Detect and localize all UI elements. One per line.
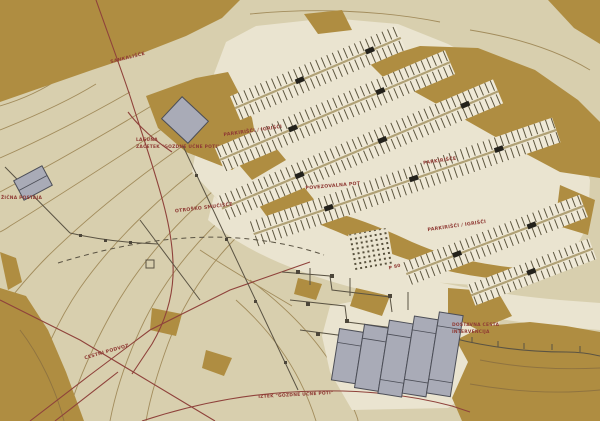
label-laguna-sub: ZAČETEK "GOZDNE UČNE POTI" — [136, 143, 220, 150]
label-delivery-road-sub: INTERVENCIJA — [452, 329, 490, 335]
label-delivery-road: DOSTAVNA CESTA — [452, 322, 500, 328]
map-canvas: SANKALIŠČE LAGUNA ZAČETEK "GOZDNE UČNE P… — [0, 0, 600, 421]
label-laguna: LAGUNA — [136, 137, 158, 143]
site-plan-map: SANKALIŠČE LAGUNA ZAČETEK "GOZDNE UČNE P… — [0, 0, 600, 421]
paved-plaza — [348, 228, 394, 270]
